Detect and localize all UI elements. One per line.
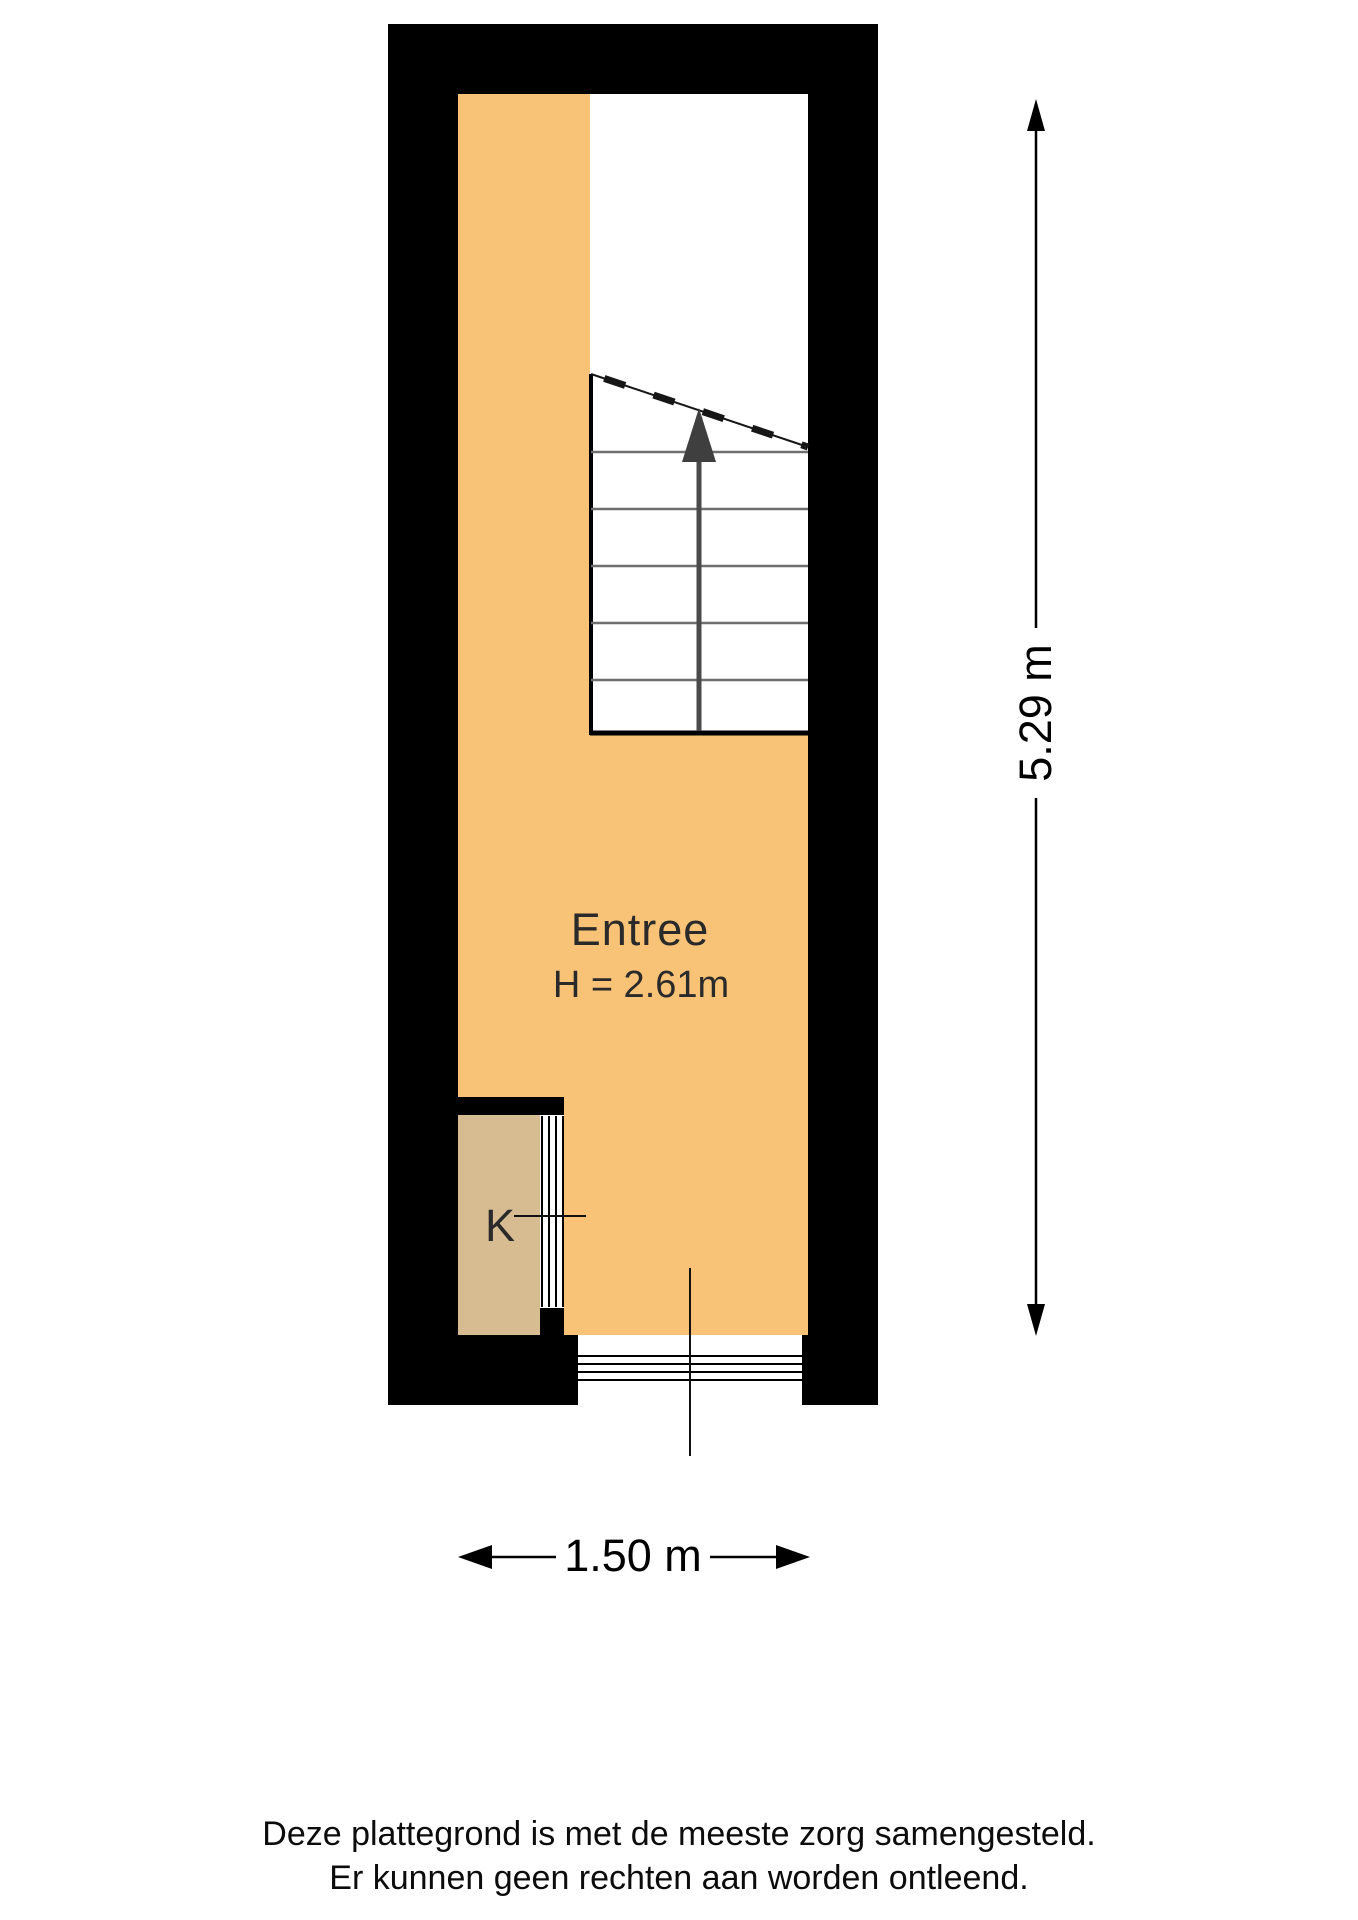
arrowhead-right-icon xyxy=(776,1545,810,1569)
arrowhead-down-icon xyxy=(1027,1304,1045,1336)
disclaimer-text: Deze plattegrond is met de meeste zorg s… xyxy=(0,1812,1358,1900)
arrowhead-left-icon xyxy=(458,1545,492,1569)
disclaimer-line-2: Er kunnen geen rechten aan worden ontlee… xyxy=(0,1856,1358,1900)
arrowhead-up-icon xyxy=(1027,99,1045,131)
closet-door-lines xyxy=(542,1116,563,1307)
dimension-height-label: 5.29 m xyxy=(1011,613,1061,813)
disclaimer-line-1: Deze plattegrond is met de meeste zorg s… xyxy=(0,1812,1358,1856)
room-name-label: Entree xyxy=(490,904,790,956)
floorplan-canvas: Entree H = 2.61m K 5.29 m 1.50 m Deze pl… xyxy=(0,0,1358,1920)
closet-label: K xyxy=(460,1200,540,1252)
dimension-width-label: 1.50 m xyxy=(533,1528,733,1584)
plan-linework xyxy=(0,0,1358,1920)
room-ceiling-height-label: H = 2.61m xyxy=(491,961,791,1009)
